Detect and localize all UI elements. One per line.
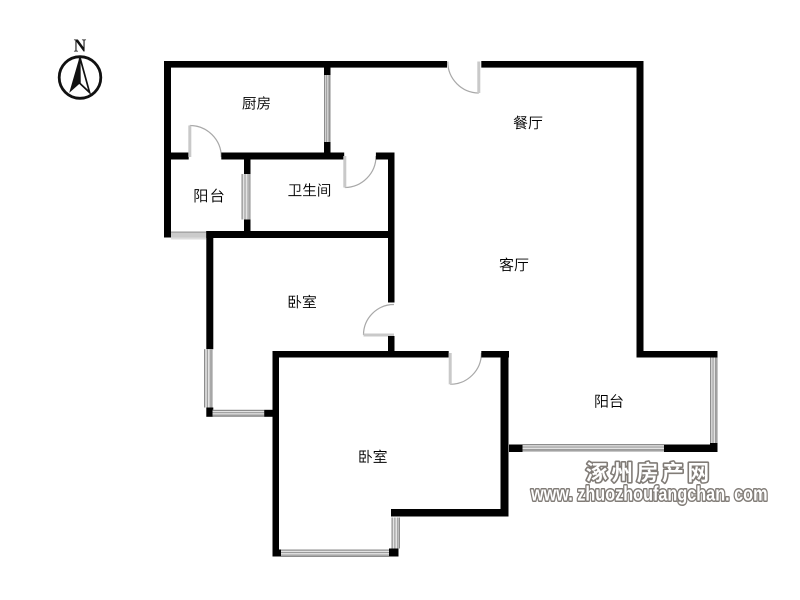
svg-text:www. zhuozhoufangchan. com: www. zhuozhoufangchan. com <box>530 483 767 505</box>
svg-text:N: N <box>74 36 87 56</box>
